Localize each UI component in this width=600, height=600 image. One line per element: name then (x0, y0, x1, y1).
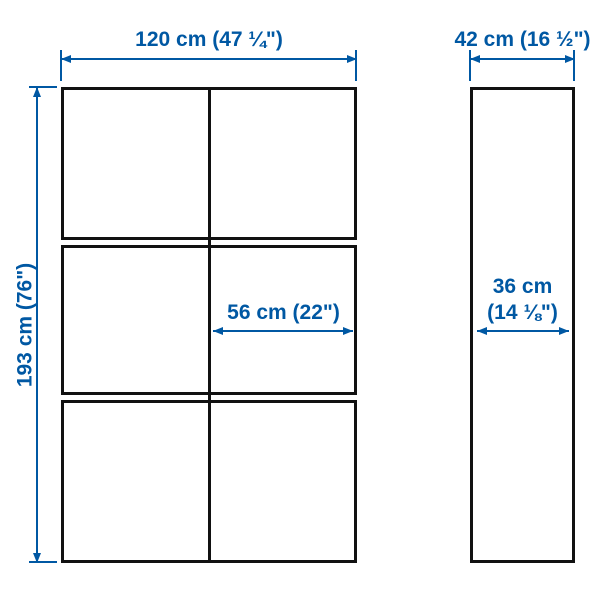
front-width-label: 120 cm (47 ¼") (61, 27, 357, 52)
side-depth-label: 42 cm (16 ½") (442, 27, 600, 52)
front-view-outline (61, 87, 357, 563)
front-width-dimension-arrow (61, 58, 357, 60)
front-width-extension-line-right (355, 50, 357, 81)
center-divider-line (208, 90, 211, 560)
front-height-label: 193 cm (76") (13, 263, 38, 387)
front-height-extension-line-top (29, 86, 57, 88)
compartment-width-dimension-arrow (213, 330, 353, 332)
front-height-extension-line-bottom (29, 561, 57, 563)
side-depth-extension-line-left (469, 50, 471, 81)
side-inner-depth-label-line2: (14 ⅛") (470, 300, 575, 326)
product-dimension-diagram: 120 cm (47 ¼") 42 cm (16 ½") 193 cm (76"… (0, 0, 600, 600)
front-height-dimension-arrow (36, 87, 38, 563)
side-depth-dimension-arrow (470, 58, 575, 60)
compartment-width-label: 56 cm (22") (213, 300, 354, 325)
side-inner-depth-label-line1: 36 cm (470, 274, 575, 300)
front-width-extension-line-left (60, 50, 62, 81)
side-inner-depth-label: 36 cm (14 ⅛") (470, 274, 575, 326)
side-depth-extension-line-right (573, 50, 575, 81)
side-inner-depth-dimension-arrow (477, 330, 569, 332)
